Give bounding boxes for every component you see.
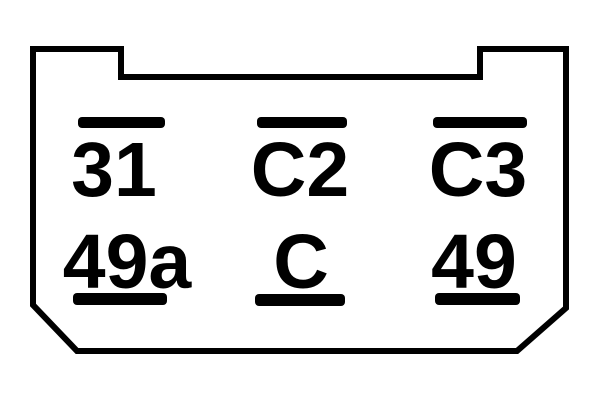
terminal-label-c3: C3 xyxy=(429,127,527,213)
terminal-label-c2: C2 xyxy=(251,127,349,213)
terminal-label-49a: 49a xyxy=(63,219,193,305)
terminal-label-c: C xyxy=(273,219,329,305)
relay-pinout-diagram: 31 C2 C3 49a C 49 xyxy=(0,0,600,400)
pinout-canvas: 31 C2 C3 49a C 49 xyxy=(0,0,600,400)
terminal-label-31: 31 xyxy=(71,127,157,213)
terminal-label-49: 49 xyxy=(431,219,517,305)
